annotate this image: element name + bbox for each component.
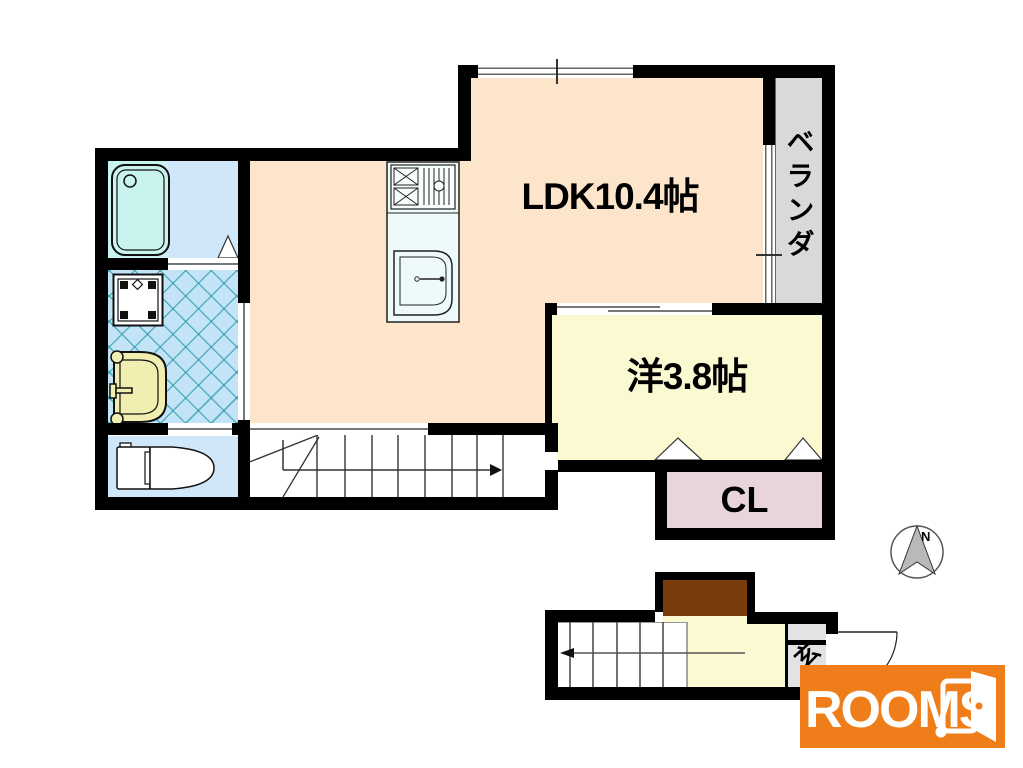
- folding-door-icon: [650, 434, 830, 461]
- wall: [95, 258, 168, 270]
- wall: [655, 572, 663, 612]
- wall: [545, 303, 557, 315]
- wall: [95, 497, 558, 510]
- door-opening-toilet: [168, 423, 232, 435]
- wall: [95, 148, 471, 161]
- wall: [747, 612, 838, 624]
- floorplan: LDK10.4帖 洋3.8帖 CL ベランダ 玄 N ROOMS: [0, 0, 1023, 768]
- wall: [428, 423, 558, 435]
- door-opening-western: [557, 303, 712, 315]
- wall: [712, 303, 823, 315]
- vanity-sink-icon: [108, 348, 172, 428]
- door-opening-bath: [168, 258, 238, 270]
- room-label-closet: CL: [667, 476, 822, 524]
- room-stairs-lower: [558, 622, 687, 688]
- wall: [545, 610, 655, 622]
- room-label-veranda: ベランダ: [775, 95, 822, 295]
- wall: [95, 148, 108, 510]
- shoe-cabinet: [663, 580, 747, 616]
- wall: [545, 687, 838, 700]
- compass-north-label: N: [921, 529, 930, 544]
- north-compass-icon: N: [888, 523, 948, 583]
- window-veranda: [763, 145, 775, 303]
- wall: [747, 572, 755, 612]
- window-tick: [556, 59, 558, 84]
- bathtub-icon: [110, 163, 172, 257]
- wall: [763, 78, 775, 145]
- door-opening-stairs: [250, 423, 428, 435]
- wall: [655, 528, 835, 540]
- door-opening-stairhole: [545, 452, 558, 470]
- stairs-up-icon: [250, 435, 545, 497]
- brand-logo: ROOMS: [800, 665, 1005, 748]
- wall: [655, 572, 755, 580]
- kitchen-unit-icon: [386, 161, 460, 323]
- washing-machine-icon: [112, 273, 164, 327]
- room-label-western: 洋3.8帖: [552, 352, 822, 402]
- door-opening-washroom: [238, 303, 250, 420]
- wall: [238, 423, 250, 510]
- toilet-icon: [112, 440, 232, 494]
- wall: [95, 423, 168, 435]
- wall: [545, 460, 835, 472]
- wall: [458, 65, 471, 161]
- room-label-ldk: LDK10.4帖: [460, 172, 760, 222]
